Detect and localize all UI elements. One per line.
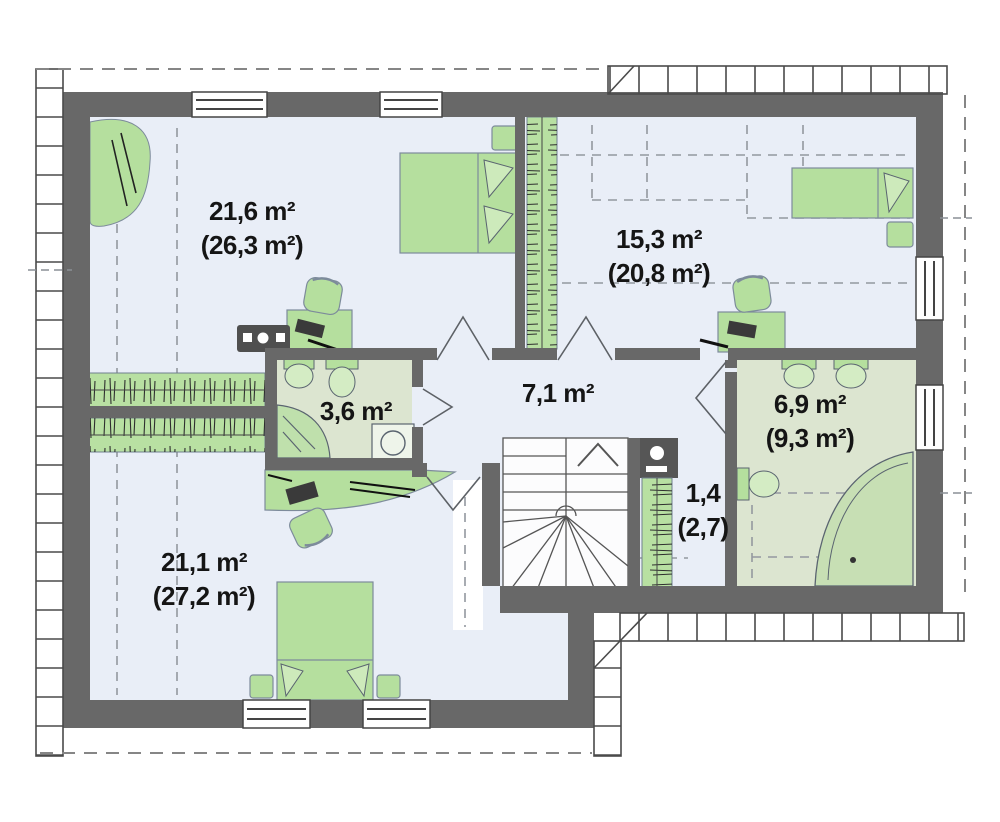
area-net: 15,3 m²: [608, 222, 710, 256]
desk-chair: [732, 274, 772, 313]
area-net: 21,1 m²: [153, 545, 255, 579]
room-label-bedroom-bottom-left: 21,1 m² (27,2 m²): [153, 545, 255, 613]
nightstand: [377, 675, 400, 698]
wall-hall-north: [265, 348, 437, 360]
desk-chair: [302, 276, 343, 316]
floor-void: [453, 480, 483, 630]
room-label-bathroom-small: 3,6 m²: [320, 394, 392, 428]
area-gross: (9,3 m²): [766, 421, 854, 455]
room-label-bathroom-large: 6,9 m² (9,3 m²): [766, 387, 854, 455]
area-net: 3,6 m²: [320, 394, 392, 428]
area-gross: (2,7): [678, 510, 729, 544]
nightstand: [492, 126, 518, 150]
area-gross: (27,2 m²): [153, 579, 255, 613]
room-label-storage-closet: 1,4 (2,7): [678, 476, 729, 544]
wall-bedrooms-divider: [515, 117, 525, 360]
eaves-south-east: [620, 613, 964, 641]
window-east-1: [916, 257, 943, 320]
faucet-icon: [850, 557, 856, 563]
area-net: 21,6 m²: [201, 194, 303, 228]
window-south-2: [363, 700, 430, 728]
window-south-1: [243, 700, 310, 728]
wall-east: [916, 92, 943, 613]
storage-closet-contents: [636, 438, 678, 590]
nightstand: [887, 222, 913, 247]
floor-plan: 21,6 m² (26,3 m²) 15,3 m² (20,8 m²) 7,1 …: [0, 0, 1000, 822]
wall-south-right-wing: [500, 586, 943, 613]
window-north-2: [380, 92, 442, 117]
eaves-north-east: [608, 66, 947, 94]
staircase: [503, 438, 628, 593]
wall-bath-small-south: [265, 458, 423, 470]
window-east-2: [916, 385, 943, 450]
area-net: 7,1 m²: [522, 376, 594, 410]
room-label-hallway: 7,1 m²: [522, 376, 594, 410]
wall-bath-small-east: [412, 348, 423, 387]
area-gross: (20,8 m²): [608, 256, 710, 290]
wall-closet-divider: [63, 406, 270, 418]
area-net: 1,4: [678, 476, 729, 510]
wall-bath-large-west: [725, 360, 737, 368]
wall-stairwell-west: [482, 463, 500, 586]
room-label-bedroom-top-left: 21,6 m² (26,3 m²): [201, 194, 303, 262]
room-label-bedroom-top-right: 15,3 m² (20,8 m²): [608, 222, 710, 290]
nightstand: [250, 675, 273, 698]
area-net: 6,9 m²: [766, 387, 854, 421]
washing-machine-icon: [372, 424, 414, 462]
toilet-icon: [737, 468, 749, 500]
wall-south-left-wing: [63, 700, 594, 728]
wall-stairs-east: [628, 438, 640, 593]
area-gross: (26,3 m²): [201, 228, 303, 262]
window-north-1: [192, 92, 267, 117]
eaves-west: [36, 69, 63, 756]
eaves-step: [594, 641, 621, 756]
